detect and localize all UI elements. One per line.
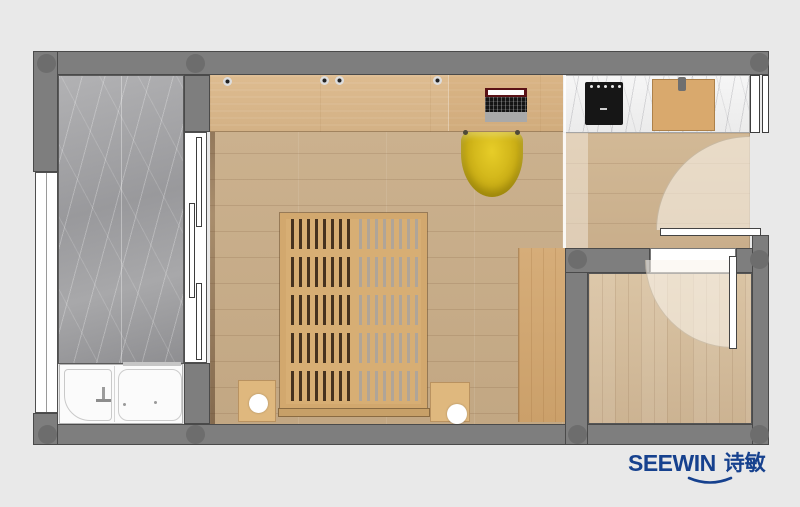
right-window-outer-pane	[750, 75, 760, 133]
board-handle	[678, 77, 686, 91]
cooktop-display	[600, 108, 607, 110]
bedside-lamp-left	[249, 394, 268, 413]
floor-plan	[33, 51, 769, 445]
column-marker	[186, 425, 205, 444]
brand-logo-cjk: 诗敏	[724, 452, 766, 475]
bath-unit	[59, 364, 183, 424]
column-marker	[186, 54, 205, 73]
column-marker	[568, 250, 587, 269]
marble-seam	[121, 76, 122, 363]
bed-rail	[278, 408, 430, 417]
floor-plan-canvas: SEEWIN 诗敏	[0, 0, 800, 507]
bathroom-door	[729, 256, 737, 349]
column-marker	[750, 425, 769, 444]
room-divider-line	[563, 75, 566, 248]
cabinet-knob	[433, 76, 442, 85]
bed-slats-right	[354, 219, 422, 404]
balcony-sliding-window	[184, 132, 207, 363]
column-marker	[568, 425, 587, 444]
tub-shelf	[123, 362, 181, 366]
partition-wall-upper	[184, 75, 210, 132]
cutting-board	[652, 79, 715, 131]
top-wall	[33, 51, 769, 75]
cabinet-knob	[335, 76, 344, 85]
left-window-mullion	[46, 173, 47, 412]
soaking-tub	[118, 369, 182, 421]
laptop	[485, 88, 527, 122]
bottom-wall	[33, 424, 769, 445]
logo-swoosh-icon	[687, 476, 733, 487]
brand-logo: SEEWIN 诗敏	[628, 452, 766, 475]
right-window-inner-pane	[762, 75, 769, 133]
wardrobe-cabinet	[518, 248, 565, 422]
laptop-screen	[485, 88, 527, 97]
tub-divider	[114, 366, 115, 422]
partition-wall-lower	[184, 363, 210, 424]
column-marker	[750, 250, 769, 269]
hallway-light-strip	[563, 133, 588, 248]
bathroom-left-wall	[565, 248, 588, 445]
faucet-icon	[96, 399, 111, 402]
cooktop-controls	[590, 85, 593, 88]
slatted-platform-bed	[280, 213, 427, 410]
cabinet-knob	[223, 77, 232, 86]
chair-arm-tip	[463, 130, 468, 135]
sliding-pane	[189, 203, 195, 298]
brand-logo-text: SEEWIN	[628, 452, 716, 475]
column-marker	[37, 54, 56, 73]
drain-dot	[123, 403, 126, 406]
left-window	[35, 172, 58, 413]
entry-door	[660, 228, 761, 236]
cooktop	[585, 82, 623, 125]
drain-dot	[154, 401, 157, 404]
laptop-palmrest	[485, 112, 527, 122]
column-marker	[750, 53, 769, 72]
sliding-pane	[196, 283, 202, 360]
bedside-lamp-right	[447, 404, 467, 424]
bed-slats-left	[286, 219, 354, 404]
column-marker	[38, 425, 57, 444]
chair-arm-tip	[515, 130, 520, 135]
cabinet-knob	[320, 76, 329, 85]
balcony-marble-floor	[58, 75, 184, 364]
sliding-pane	[196, 137, 202, 227]
laptop-keyboard	[485, 97, 527, 112]
